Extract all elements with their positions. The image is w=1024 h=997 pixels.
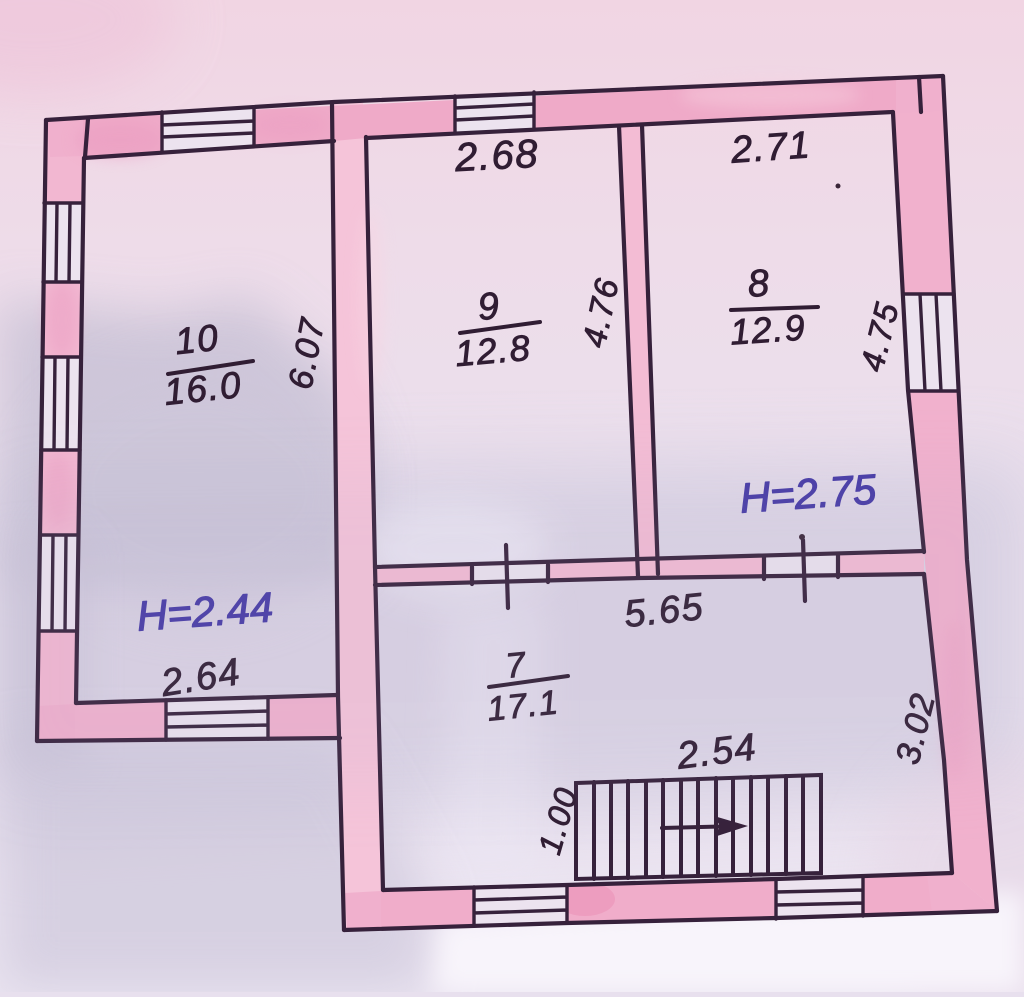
svg-text:16.0: 16.0 — [162, 364, 244, 413]
svg-text:10: 10 — [173, 317, 221, 362]
svg-text:9: 9 — [476, 285, 502, 329]
svg-text:12.9: 12.9 — [729, 306, 808, 352]
svg-text:12.8: 12.8 — [453, 327, 532, 374]
svg-text:8: 8 — [746, 262, 772, 306]
svg-text:2.71: 2.71 — [729, 124, 813, 172]
svg-text:2.68: 2.68 — [453, 132, 540, 180]
